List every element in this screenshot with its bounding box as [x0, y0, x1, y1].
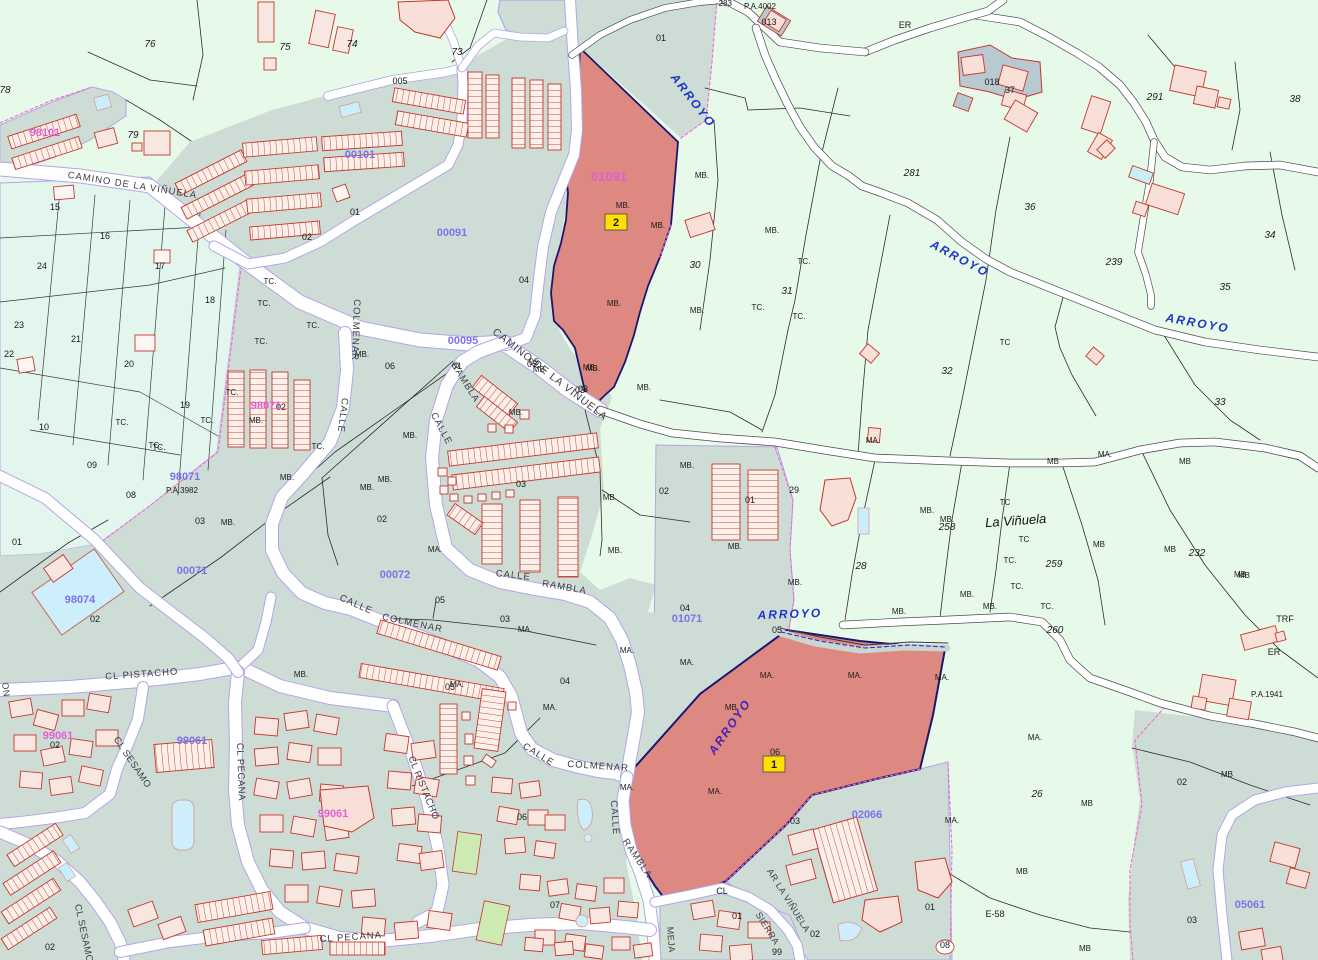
svg-text:MB.: MB. [221, 518, 235, 527]
svg-text:P.A.4002: P.A.4002 [744, 2, 776, 11]
svg-text:09: 09 [87, 460, 97, 470]
svg-text:00071: 00071 [177, 565, 208, 577]
svg-text:260: 260 [1046, 625, 1064, 636]
svg-text:MB.: MB. [892, 607, 906, 616]
svg-text:32: 32 [941, 366, 953, 377]
svg-text:28: 28 [854, 561, 867, 572]
svg-text:TC.: TC. [258, 299, 271, 308]
svg-text:99: 99 [772, 947, 782, 957]
svg-text:01: 01 [350, 207, 360, 217]
svg-text:02: 02 [659, 486, 669, 496]
svg-text:05: 05 [772, 625, 782, 635]
svg-text:018: 018 [984, 77, 999, 87]
svg-text:01: 01 [732, 911, 742, 921]
svg-text:TC.: TC. [255, 337, 268, 346]
svg-text:99061: 99061 [318, 808, 349, 820]
svg-text:MA.: MA. [935, 673, 949, 682]
svg-text:38: 38 [1289, 94, 1301, 105]
svg-text:04: 04 [680, 603, 690, 613]
svg-text:98101: 98101 [30, 127, 61, 139]
svg-text:98074: 98074 [65, 594, 96, 606]
svg-text:08: 08 [940, 940, 950, 950]
svg-text:03: 03 [516, 479, 526, 489]
svg-text:31: 31 [781, 286, 792, 297]
svg-text:19: 19 [180, 400, 190, 410]
svg-text:MB.: MB. [603, 493, 617, 502]
svg-text:08: 08 [126, 490, 136, 500]
svg-text:MB.: MB. [765, 226, 779, 235]
svg-text:00072: 00072 [380, 569, 411, 581]
svg-text:TC.: TC. [1004, 556, 1017, 565]
svg-text:MB.: MB. [249, 416, 263, 425]
svg-text:74: 74 [346, 39, 358, 50]
svg-text:281: 281 [903, 168, 921, 179]
svg-text:MB.: MB. [586, 364, 600, 373]
svg-text:P.A.1941: P.A.1941 [1251, 690, 1283, 699]
svg-text:TRF: TRF [1276, 614, 1294, 624]
svg-text:TC.: TC. [149, 441, 162, 450]
svg-text:01: 01 [12, 537, 22, 547]
svg-text:MEJA: MEJA [665, 926, 677, 953]
svg-text:36: 36 [1024, 202, 1036, 213]
svg-text:TC: TC [1000, 338, 1011, 347]
svg-text:TC.: TC. [264, 277, 277, 286]
svg-text:37: 37 [1005, 85, 1015, 95]
svg-text:76: 76 [144, 39, 156, 50]
svg-text:MB.: MB. [728, 542, 742, 551]
svg-text:MA.: MA. [1028, 733, 1042, 742]
svg-text:TC.: TC. [201, 416, 214, 425]
svg-text:ON: ON [0, 682, 12, 698]
svg-text:00091: 00091 [437, 227, 468, 239]
svg-text:98071: 98071 [251, 400, 282, 412]
svg-text:MB: MB [1081, 799, 1093, 808]
svg-text:99061: 99061 [43, 730, 74, 742]
svg-text:01: 01 [656, 33, 666, 43]
svg-text:MA.: MA. [760, 671, 774, 680]
svg-text:05061: 05061 [1235, 899, 1266, 911]
svg-text:TC.: TC. [793, 312, 806, 321]
svg-text:MA.: MA. [866, 436, 880, 445]
svg-text:MB.: MB. [616, 201, 630, 210]
svg-text:00101: 00101 [345, 149, 376, 161]
svg-text:16: 16 [100, 231, 110, 241]
svg-text:MA.: MA. [680, 658, 694, 667]
svg-text:34: 34 [1264, 230, 1276, 241]
svg-text:29: 29 [789, 485, 799, 495]
svg-text:03: 03 [195, 516, 205, 526]
svg-text:MB: MB [1016, 867, 1028, 876]
svg-text:02: 02 [302, 232, 312, 242]
svg-text:MA.: MA. [708, 787, 722, 796]
svg-text:MB: MB [1221, 770, 1233, 779]
svg-text:005: 005 [392, 76, 407, 86]
svg-text:ARROYO: ARROYO [756, 606, 822, 622]
svg-text:01: 01 [745, 495, 755, 505]
svg-text:MB.: MB. [940, 515, 954, 524]
svg-text:MB.: MB. [651, 221, 665, 230]
svg-text:TC: TC [1019, 535, 1030, 544]
svg-text:04: 04 [560, 676, 570, 686]
svg-text:20: 20 [124, 359, 134, 369]
svg-text:02: 02 [1177, 777, 1187, 787]
svg-text:06: 06 [385, 361, 395, 371]
svg-text:MB.: MB. [403, 431, 417, 440]
svg-text:MB.: MB. [294, 670, 308, 679]
svg-text:78: 78 [0, 85, 11, 96]
svg-text:TC.: TC. [312, 442, 325, 451]
svg-text:MB.: MB. [280, 473, 294, 482]
svg-text:01071: 01071 [672, 613, 703, 625]
svg-text:26: 26 [1030, 789, 1043, 800]
svg-text:03: 03 [1187, 915, 1197, 925]
svg-text:MB: MB [1047, 457, 1059, 466]
svg-text:73: 73 [451, 47, 463, 58]
svg-text:MB: MB [1234, 570, 1246, 579]
svg-text:MB.: MB. [607, 299, 621, 308]
svg-text:22: 22 [4, 349, 14, 359]
svg-text:MB: MB [1179, 457, 1191, 466]
svg-text:291: 291 [1146, 92, 1164, 103]
svg-text:00095: 00095 [448, 335, 479, 347]
svg-text:2: 2 [613, 217, 619, 229]
svg-text:MA.: MA. [518, 625, 532, 634]
svg-text:MB: MB [1093, 540, 1105, 549]
svg-text:33: 33 [1214, 397, 1226, 408]
svg-text:MB.: MB. [360, 483, 374, 492]
svg-text:MB.: MB. [983, 602, 997, 611]
svg-text:TC.: TC. [752, 303, 765, 312]
svg-text:232: 232 [1188, 548, 1206, 559]
svg-text:239: 239 [1105, 257, 1123, 268]
svg-text:MB.: MB. [920, 506, 934, 515]
svg-text:-283: -283 [716, 0, 733, 8]
svg-text:MA.: MA. [945, 816, 959, 825]
svg-text:35: 35 [1219, 282, 1231, 293]
svg-text:MB.: MB. [680, 461, 694, 470]
svg-text:04: 04 [519, 275, 529, 285]
svg-text:02: 02 [810, 929, 820, 939]
svg-text:TC.: TC. [1041, 602, 1054, 611]
svg-text:MB.: MB. [509, 408, 523, 417]
svg-text:259: 259 [1045, 559, 1063, 570]
svg-text:MB.: MB. [690, 306, 704, 315]
svg-text:TC.: TC. [1011, 582, 1024, 591]
svg-text:MA.: MA. [620, 783, 634, 792]
svg-text:MA.: MA. [543, 703, 557, 712]
svg-text:CL: CL [716, 886, 728, 896]
svg-text:MB.: MB. [695, 171, 709, 180]
svg-text:MA.: MA. [1098, 450, 1112, 459]
svg-text:79: 79 [127, 130, 139, 141]
svg-text:MB.: MB. [608, 546, 622, 555]
svg-text:03: 03 [790, 816, 800, 826]
svg-text:TC.: TC. [798, 257, 811, 266]
svg-text:06: 06 [517, 812, 527, 822]
svg-text:MB.: MB. [378, 475, 392, 484]
svg-text:01: 01 [925, 902, 935, 912]
svg-text:30: 30 [689, 260, 701, 271]
svg-text:MA.: MA. [620, 646, 634, 655]
svg-text:CL PECANA: CL PECANA [234, 743, 247, 802]
svg-text:02: 02 [45, 942, 55, 952]
svg-text:TC.: TC. [307, 321, 320, 330]
svg-text:02: 02 [377, 514, 387, 524]
svg-text:MB.: MB. [960, 590, 974, 599]
svg-text:02066: 02066 [852, 809, 883, 821]
svg-text:ER: ER [899, 20, 912, 30]
svg-text:15: 15 [50, 202, 60, 212]
svg-text:MB.: MB. [637, 383, 651, 392]
svg-text:P.A.3982: P.A.3982 [166, 486, 198, 495]
svg-text:99061: 99061 [177, 735, 208, 747]
svg-text:MB.: MB. [788, 578, 802, 587]
svg-text:TC.: TC. [226, 388, 239, 397]
svg-text:21: 21 [71, 334, 81, 344]
svg-text:013: 013 [761, 17, 776, 27]
svg-text:75: 75 [279, 42, 291, 53]
svg-text:98071: 98071 [170, 471, 201, 483]
svg-text:10: 10 [39, 422, 49, 432]
svg-text:18: 18 [205, 295, 215, 305]
svg-text:TC: TC [1000, 498, 1011, 507]
svg-text:MA.: MA. [848, 671, 862, 680]
svg-text:05: 05 [435, 595, 445, 605]
svg-text:MB: MB [1079, 944, 1091, 953]
svg-text:MB: MB [1164, 545, 1176, 554]
svg-text:1: 1 [771, 759, 777, 771]
svg-text:07: 07 [550, 900, 560, 910]
svg-text:17: 17 [155, 261, 165, 271]
svg-text:E-58: E-58 [985, 909, 1004, 919]
svg-text:03: 03 [500, 614, 510, 624]
svg-text:MA.: MA. [450, 680, 464, 689]
svg-text:COLMENAR: COLMENAR [349, 299, 362, 361]
svg-text:TC.: TC. [116, 418, 129, 427]
svg-text:06: 06 [770, 747, 780, 757]
svg-text:02: 02 [90, 614, 100, 624]
svg-text:23: 23 [14, 320, 24, 330]
svg-text:01091: 01091 [591, 169, 627, 184]
svg-text:MA.: MA. [428, 545, 442, 554]
svg-text:24: 24 [37, 261, 47, 271]
svg-text:ER: ER [1268, 647, 1281, 657]
